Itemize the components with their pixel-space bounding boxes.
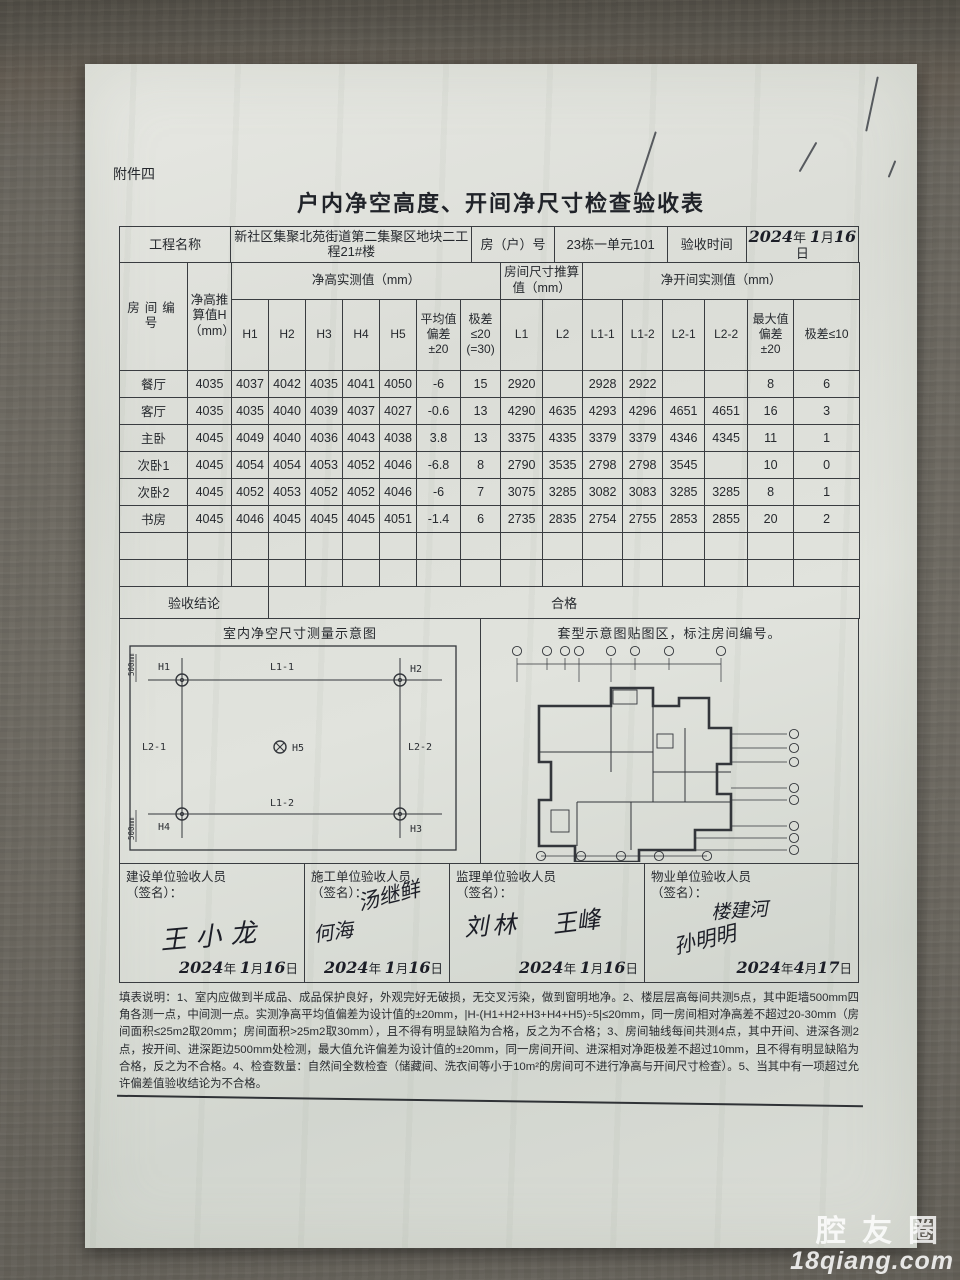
cell [543,559,583,586]
cell: 4040 [269,424,306,451]
cell: 1 [794,424,860,451]
cell: 4037 [232,370,269,397]
cell: 8 [461,451,501,478]
cell [794,532,860,559]
header-l21: L2-1 [663,299,705,370]
cell: 4335 [543,424,583,451]
cell: 8 [748,370,794,397]
cell: 4046 [232,505,269,532]
signature-section: 建设单位验收人员 （签名）： 王小龙 2024年 1月16日 施工单位验收人员 … [119,863,859,983]
cell: 客厅 [120,397,188,424]
cell: 4035 [232,397,269,424]
cell [306,559,343,586]
cell: 3285 [543,478,583,505]
handwritten-year: 2024 [737,958,782,977]
day-unit: 日 [430,962,443,976]
cell: 书房 [120,505,188,532]
diagram-label-h3: H3 [410,824,422,835]
signature-block-property: 物业单位验收人员 （签名）： 楼建河 孙明明 2024年4月17日 [645,864,858,982]
handwritten-day: 16 [834,227,856,246]
handwritten-day: 16 [408,958,430,977]
cell: 4036 [306,424,343,451]
cell: 2798 [583,451,623,478]
cell: 0 [794,451,860,478]
cell: 次卧1 [120,451,188,478]
watermark: 腔友圈 18qiang.com [790,1216,954,1277]
acceptance-date-label: 验收时间 [667,227,746,263]
cell: 13 [461,424,501,451]
table-row-empty [120,532,860,559]
signer-role: 建设单位验收人员 [126,869,298,885]
cell: 7 [461,478,501,505]
handwritten-month: 1 [240,958,251,977]
signer-role: 物业单位验收人员 [651,869,852,885]
paper-sheet: 附件四 户内净空高度、开间净尺寸检查验收表 工程名称 新社区集聚北苑街道第二集聚… [85,64,917,1248]
header-l22: L2-2 [705,299,748,370]
handwritten-day: 16 [263,958,285,977]
cell: 3.8 [417,424,461,451]
cell: 主卧 [120,424,188,451]
cell: 3 [794,397,860,424]
cell: 4049 [232,424,269,451]
footer-rule [117,1095,863,1107]
cell [705,559,748,586]
conclusion-value: 合格 [269,586,860,618]
cell: 3379 [583,424,623,451]
signature-block-contractor: 施工单位验收人员 （签名）： 汤继鲜 何海 2024年 1月16日 [305,864,450,982]
signature-name: 孙明明 [670,917,738,960]
cell: 3083 [623,478,663,505]
cell [705,532,748,559]
cell: 3082 [583,478,623,505]
form-filling-notes: 填表说明：1、室内应做到半成品、成品保护良好，外观完好无破损，无交叉污染，做到窗… [119,990,859,1094]
month-unit: 月 [805,962,818,976]
header-room: 房间编号 [120,262,188,370]
cell [501,559,543,586]
header-avg-dev: 平均值偏差±20 [417,299,461,370]
cell: 4651 [663,397,705,424]
cell: 4346 [663,424,705,451]
measurement-diagram-cell: 室内净空尺寸测量示意图 H1 H2 [120,619,481,863]
watermark-domain: 18qiang.com [790,1247,954,1276]
cell [461,532,501,559]
cell: 4035 [188,397,232,424]
page-title: 户内净空高度、开间净尺寸检查验收表 [85,186,917,218]
cell [501,532,543,559]
unit-number-value: 23栋一单元101 [554,227,667,263]
year-unit: 年 [564,962,577,976]
header-h5: H5 [380,299,417,370]
day-unit: 日 [796,246,809,261]
cell: 4050 [380,370,417,397]
project-info-table: 工程名称 新社区集聚北苑街道第二集聚区地块二工程21#楼 房（户）号 23栋一单… [119,226,859,263]
cell: 4045 [188,451,232,478]
header-h4: H4 [343,299,380,370]
signature-block-supervisor: 监理单位验收人员 （签名）： 刘林 王峰 2024年 1月16日 [450,864,645,982]
cell: 13 [461,397,501,424]
cell: 16 [748,397,794,424]
cell: 4052 [306,478,343,505]
pen-mark [635,131,657,192]
cell: 4038 [380,424,417,451]
cell [543,370,583,397]
header-l2: L2 [543,299,583,370]
cell [380,559,417,586]
cell: 4045 [343,505,380,532]
cell: -6.8 [417,451,461,478]
cell [120,532,188,559]
table-row: 主卧4045404940404036404340383.813337543353… [120,424,860,451]
diagram-label-h5: H5 [292,743,304,754]
cell: 2853 [663,505,705,532]
signature-date: 2024年 1月16日 [324,958,443,977]
cell: 次卧2 [120,478,188,505]
handwritten-year: 2024 [324,958,369,977]
cell [343,532,380,559]
diagram-label-h2: H2 [410,664,422,675]
cell [705,370,748,397]
project-name-value: 新社区集聚北苑街道第二集聚区地块二工程21#楼 [231,227,472,263]
signature-name: 刘林 [463,904,521,943]
signer-sub-label: （签名）： [456,885,638,901]
cell: 4052 [343,478,380,505]
cell [232,532,269,559]
cell: 15 [461,370,501,397]
month-unit: 月 [396,962,409,976]
signature-date: 2024年4月17日 [737,958,852,977]
table-row: 次卧1404540544054405340524046-6.8827903535… [120,451,860,478]
handwritten-month: 1 [580,958,591,977]
cell [623,532,663,559]
diagram-label-l12: L1-2 [270,798,294,809]
cell: 4293 [583,397,623,424]
diagram-label-h4: H4 [158,822,170,833]
year-unit: 年 [793,230,806,245]
diagram-section: 室内净空尺寸测量示意图 H1 H2 [119,618,859,864]
cell: -6 [417,478,461,505]
cell [269,559,306,586]
cell: 4054 [269,451,306,478]
signature-name: 王峰 [550,899,602,940]
cell [663,532,705,559]
cell: 4651 [705,397,748,424]
diagram-label-offset-bottom: 500mm [127,817,136,840]
cell: 20 [748,505,794,532]
cell: 4035 [188,370,232,397]
handwritten-month: 1 [810,227,821,246]
header-l1: L1 [501,299,543,370]
cell: 4027 [380,397,417,424]
cell: 4053 [269,478,306,505]
cell: 4042 [269,370,306,397]
acceptance-date-value: 2024年 1月16日 [746,227,858,263]
handwritten-year: 2024 [179,958,224,977]
signature-date: 2024年 1月16日 [179,958,298,977]
day-unit: 日 [285,962,298,976]
handwritten-day: 17 [817,958,839,977]
year-unit: 年 [781,962,794,976]
cell: 3375 [501,424,543,451]
header-max-dev: 最大值偏差±20 [748,299,794,370]
cell [306,532,343,559]
cell [269,532,306,559]
cell [623,559,663,586]
table-row-empty [120,559,860,586]
table-row: 餐厅403540374042403540414050-6152920292829… [120,370,860,397]
attachment-label: 附件四 [113,164,155,184]
table-row: 客厅403540354040403940374027-0.61342904635… [120,397,860,424]
cell: 2735 [501,505,543,532]
handwritten-year: 2024 [749,227,794,246]
cell: 2798 [623,451,663,478]
cell [705,451,748,478]
cell: 4043 [343,424,380,451]
header-h-design: 净高推算值H（mm） [188,262,232,370]
cell: 4045 [306,505,343,532]
cell: 4296 [623,397,663,424]
signer-sub-label: （签名）： [126,885,298,901]
cell [417,559,461,586]
cell: 2920 [501,370,543,397]
conclusion-label: 验收结论 [120,586,269,618]
header-range20: 极差≤20 (=30) [461,299,501,370]
floorplan-caption: 套型示意图贴图区，标注房间编号。 [481,619,858,642]
signature-date: 2024年 1月16日 [519,958,638,977]
cell [417,532,461,559]
cell [663,370,705,397]
header-h1: H1 [232,299,269,370]
cell: 4051 [380,505,417,532]
cell: -1.4 [417,505,461,532]
header-l12: L1-2 [623,299,663,370]
cell: 4045 [188,424,232,451]
pen-mark [888,160,897,177]
floorplan-cell: 套型示意图贴图区，标注房间编号。 [481,619,858,863]
header-size-group: 房间尺寸推算值（mm） [501,262,583,299]
cell: 6 [461,505,501,532]
cell: 2928 [583,370,623,397]
signer-role: 监理单位验收人员 [456,869,638,885]
cell [794,559,860,586]
header-h3: H3 [306,299,343,370]
measurement-diagram-caption: 室内净空尺寸测量示意图 [120,619,480,642]
table-row: 次卧2404540524053405240524046-673075328530… [120,478,860,505]
cell: 2754 [583,505,623,532]
cell [583,532,623,559]
cell: 4046 [380,451,417,478]
cell [748,532,794,559]
cell [232,559,269,586]
cell [188,532,232,559]
cell: 餐厅 [120,370,188,397]
floorplan-diagram [481,642,853,862]
cell: 4052 [232,478,269,505]
cell: 4053 [306,451,343,478]
cell [188,559,232,586]
year-unit: 年 [369,962,382,976]
cell: 4040 [269,397,306,424]
cell [343,559,380,586]
signature-name: 何海 [311,913,355,947]
cell [583,559,623,586]
cell: 4045 [269,505,306,532]
project-name-label: 工程名称 [120,227,231,263]
cell: 6 [794,370,860,397]
measurement-diagram: H1 H2 H3 H4 H5 L1-1 L1-2 L2-1 L2-2 500mm… [120,642,468,858]
cell: 4039 [306,397,343,424]
day-unit: 日 [625,962,638,976]
diagram-label-offset-top: 500mm [127,653,136,676]
cell [461,559,501,586]
cell: 3535 [543,451,583,478]
cell: 3379 [623,424,663,451]
signature-name: 王小龙 [159,911,267,957]
cell [380,532,417,559]
cell: 2790 [501,451,543,478]
handwritten-year: 2024 [519,958,564,977]
table-header-row: 房间编号 净高推算值H（mm） 净高实测值（mm） 房间尺寸推算值（mm） 净开… [120,262,860,299]
conclusion-row: 验收结论 合格 [120,586,860,618]
watermark-brand: 腔友圈 [790,1216,954,1248]
header-l11: L1-1 [583,299,623,370]
handwritten-day: 16 [603,958,625,977]
month-unit: 月 [591,962,604,976]
day-unit: 日 [839,962,852,976]
cell: 4054 [232,451,269,478]
month-unit: 月 [251,962,264,976]
cell: 4345 [705,424,748,451]
diagram-label-l21: L2-1 [142,742,166,753]
cell: 4045 [188,478,232,505]
diagram-label-l22: L2-2 [408,742,432,753]
pen-mark [865,76,879,131]
cell: 4052 [343,451,380,478]
measurement-table: 房间编号 净高推算值H（mm） 净高实测值（mm） 房间尺寸推算值（mm） 净开… [119,262,860,619]
year-unit: 年 [224,962,237,976]
cell: 4290 [501,397,543,424]
cell: 2835 [543,505,583,532]
cell: -6 [417,370,461,397]
cell: 4635 [543,397,583,424]
cell: 2855 [705,505,748,532]
diagram-label-h1: H1 [158,662,170,673]
cell [663,559,705,586]
cell [748,559,794,586]
cell: 3545 [663,451,705,478]
signature-block-construction-owner: 建设单位验收人员 （签名）： 王小龙 2024年 1月16日 [120,864,305,982]
handwritten-month: 1 [385,958,396,977]
header-bay-group: 净开间实测值（mm） [583,262,860,299]
cell: 11 [748,424,794,451]
cell: 3075 [501,478,543,505]
handwritten-month: 4 [794,958,805,977]
cell: 2 [794,505,860,532]
diagram-label-l11: L1-1 [270,662,294,673]
month-unit: 月 [821,230,834,245]
cell: 3285 [705,478,748,505]
header-h-group: 净高实测值（mm） [232,262,501,299]
cell: 4037 [343,397,380,424]
cell: 8 [748,478,794,505]
cell [120,559,188,586]
cell: 2922 [623,370,663,397]
cell: 4046 [380,478,417,505]
cell: 4045 [188,505,232,532]
cell: 4035 [306,370,343,397]
table-row: 书房404540464045404540454051-1.46273528352… [120,505,860,532]
cell: 3285 [663,478,705,505]
cell: -0.6 [417,397,461,424]
cell: 2755 [623,505,663,532]
cell: 10 [748,451,794,478]
inspection-form: 工程名称 新社区集聚北苑街道第二集聚区地块二工程21#楼 房（户）号 23栋一单… [119,226,861,1102]
pen-mark [799,142,818,172]
cell: 1 [794,478,860,505]
header-range10: 极差≤10 [794,299,860,370]
header-h2: H2 [269,299,306,370]
cell [543,532,583,559]
table-row: 工程名称 新社区集聚北苑街道第二集聚区地块二工程21#楼 房（户）号 23栋一单… [120,227,859,263]
unit-number-label: 房（户）号 [472,227,554,263]
cell: 4041 [343,370,380,397]
